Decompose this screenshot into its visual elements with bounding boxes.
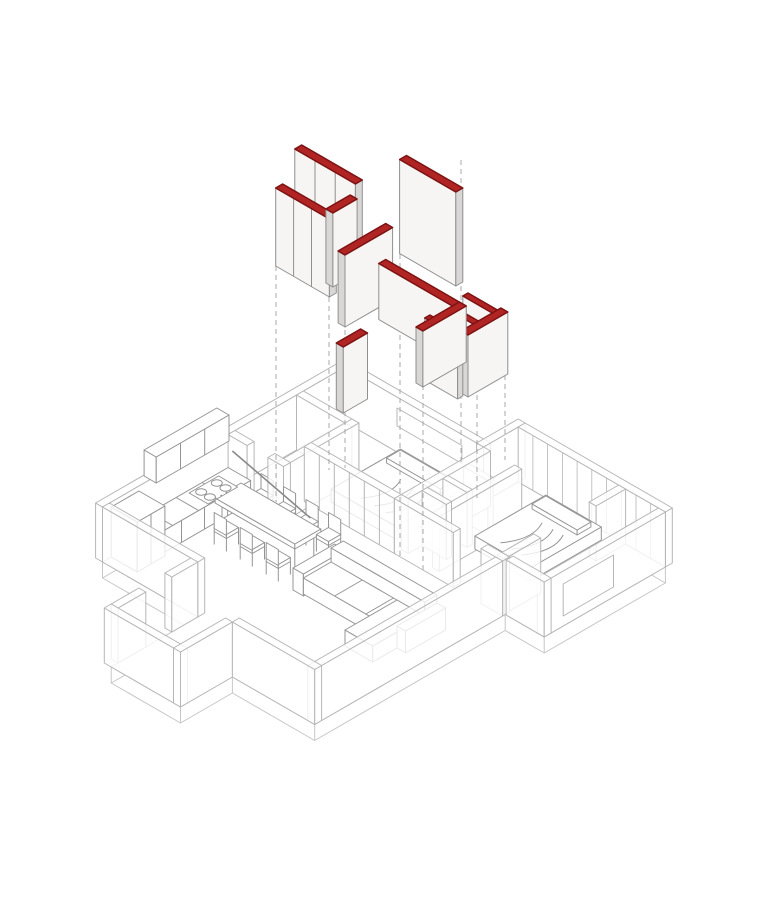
diagram-svg — [0, 0, 760, 921]
panel-corridor-small — [336, 329, 367, 413]
exploded-wall-panels — [276, 145, 508, 413]
axonometric-drawing — [0, 0, 760, 921]
exploded-axonometric-diagram — [0, 0, 760, 921]
panel-bedroom-tall — [400, 156, 463, 287]
